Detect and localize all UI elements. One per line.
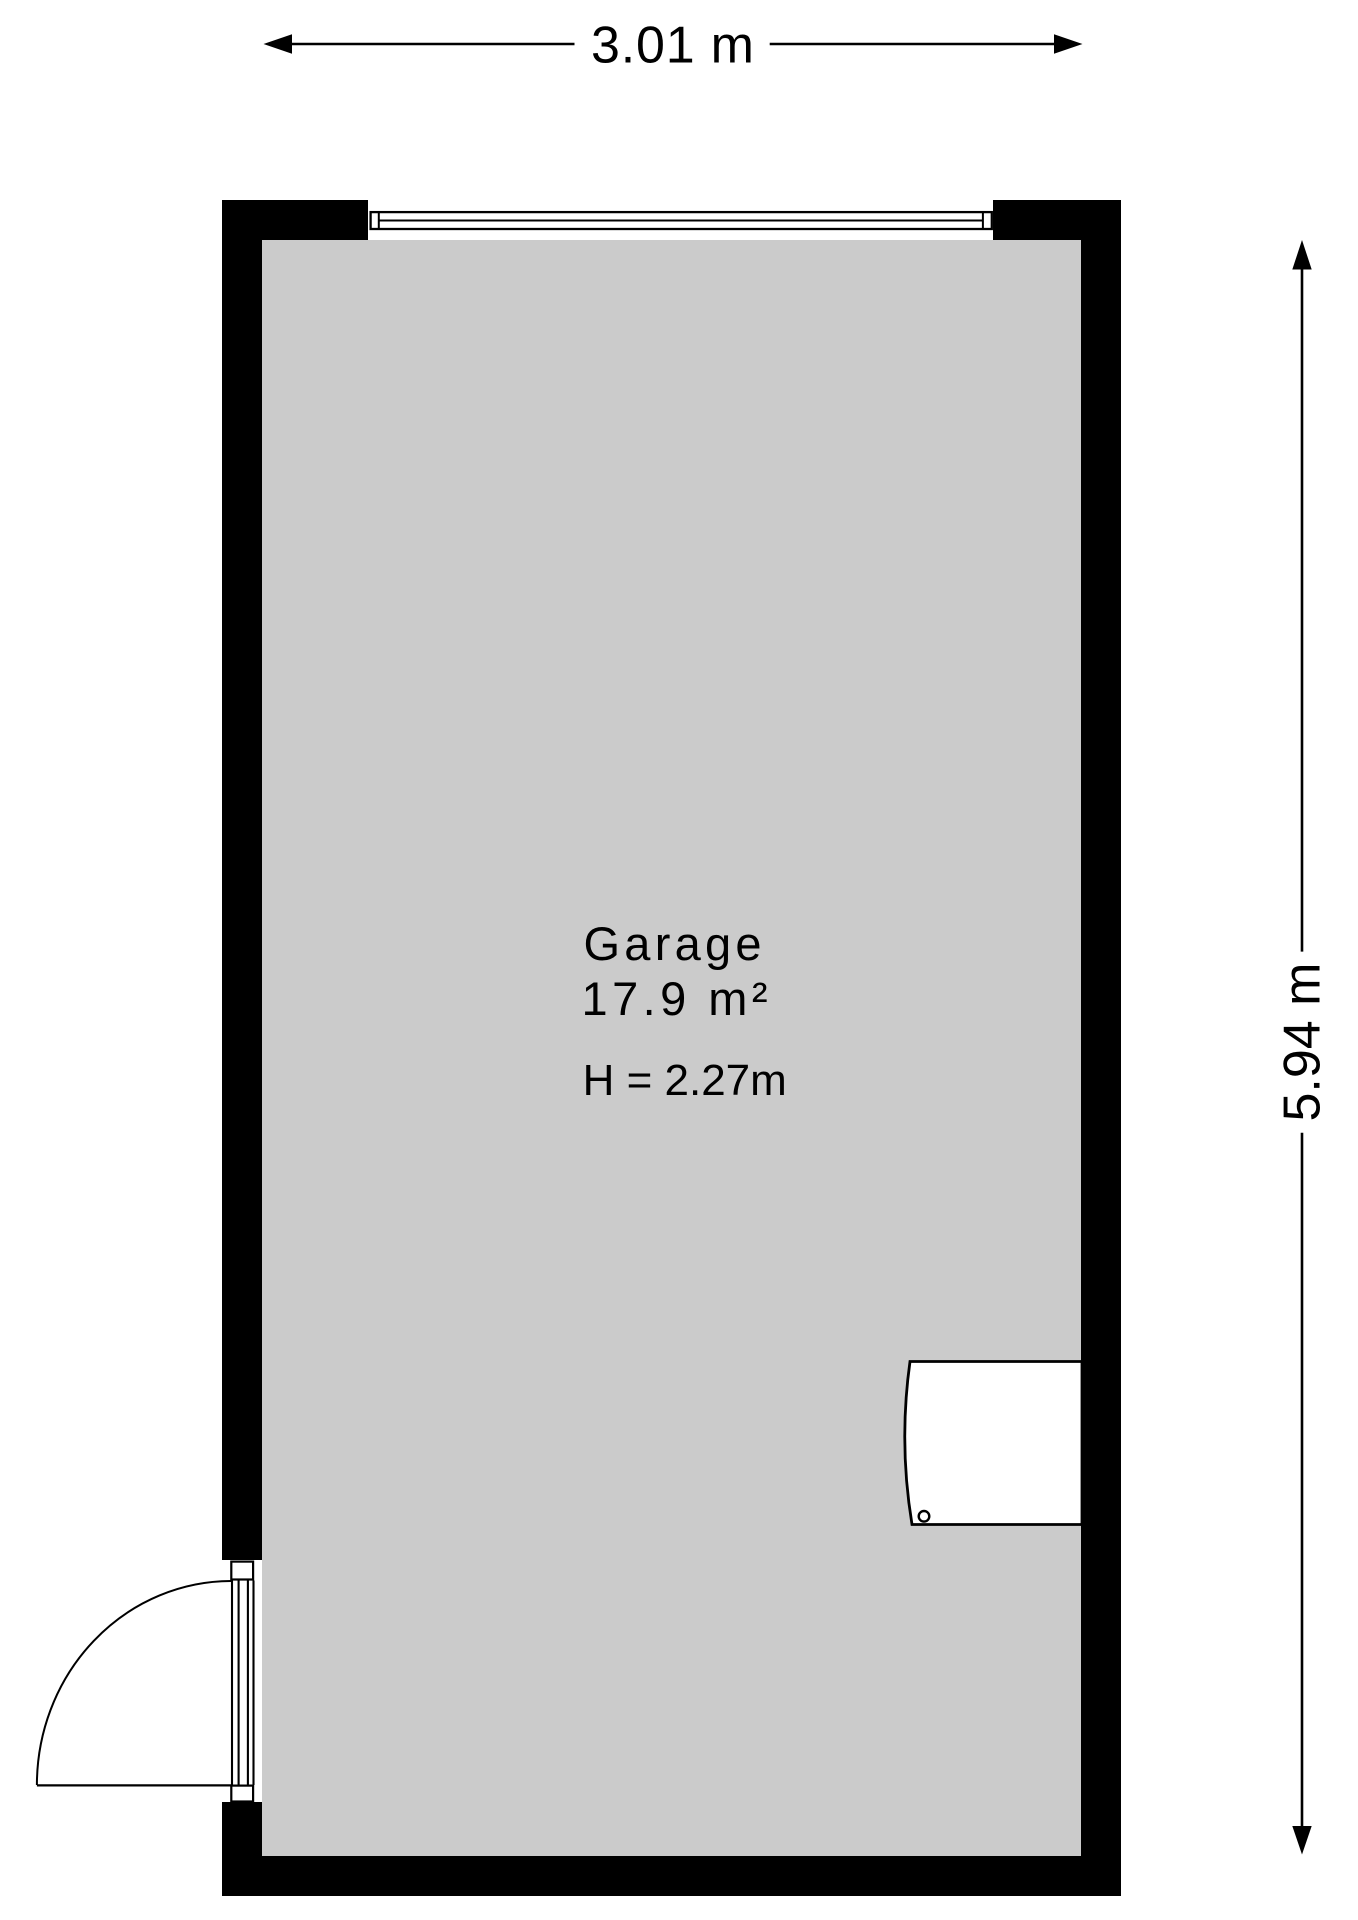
svg-text:3.01 m: 3.01 m xyxy=(591,17,754,75)
svg-text:5.94 m: 5.94 m xyxy=(1274,963,1332,1122)
svg-text:H = 2.27m: H = 2.27m xyxy=(583,1056,787,1105)
